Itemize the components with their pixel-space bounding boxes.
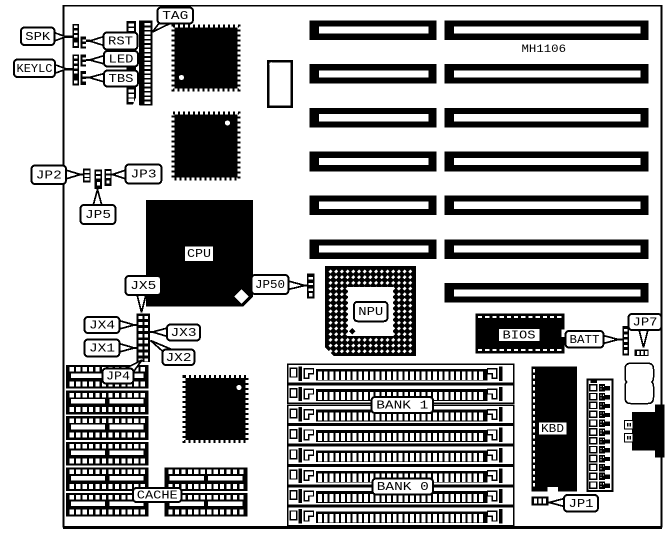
svg-text:JX5: JX5 bbox=[130, 279, 156, 293]
svg-text:CACHE: CACHE bbox=[137, 489, 178, 503]
svg-text:JX4: JX4 bbox=[89, 319, 115, 333]
svg-text:KBD: KBD bbox=[541, 422, 564, 436]
svg-text:JX3: JX3 bbox=[171, 326, 197, 340]
svg-text:JP4: JP4 bbox=[106, 370, 130, 384]
svg-text:BATT: BATT bbox=[570, 333, 600, 347]
svg-text:NPU: NPU bbox=[358, 305, 383, 319]
svg-text:JP2: JP2 bbox=[36, 168, 62, 182]
svg-text:JP1: JP1 bbox=[569, 497, 594, 511]
svg-text:KEYLC: KEYLC bbox=[17, 62, 53, 76]
svg-text:TBS: TBS bbox=[109, 72, 134, 86]
svg-text:LED: LED bbox=[109, 52, 134, 66]
svg-text:JP50: JP50 bbox=[255, 278, 285, 292]
svg-text:MH1106: MH1106 bbox=[522, 44, 567, 56]
svg-text:JP5: JP5 bbox=[85, 208, 111, 222]
svg-text:JX2: JX2 bbox=[166, 351, 192, 365]
svg-text:JP7: JP7 bbox=[633, 316, 658, 330]
svg-text:RST: RST bbox=[108, 35, 133, 49]
svg-text:TAG: TAG bbox=[162, 9, 188, 23]
svg-text:BIOS: BIOS bbox=[503, 328, 536, 342]
svg-text:CPU: CPU bbox=[187, 247, 211, 261]
svg-text:BANK 1: BANK 1 bbox=[376, 399, 428, 413]
svg-text:JX1: JX1 bbox=[89, 342, 115, 356]
svg-text:BANK 0: BANK 0 bbox=[377, 480, 429, 494]
svg-text:JP3: JP3 bbox=[131, 168, 157, 182]
svg-text:SPK: SPK bbox=[25, 30, 51, 44]
